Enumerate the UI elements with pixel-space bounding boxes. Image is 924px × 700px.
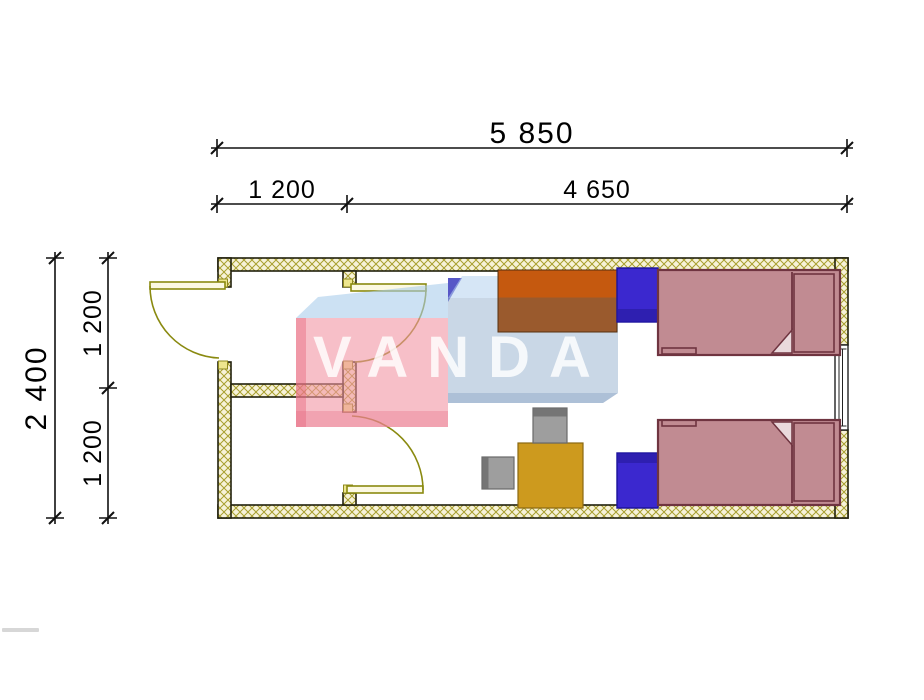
bed-bottom [658,420,840,505]
desk-top-surface [499,271,617,298]
bed-bottom-pillow [794,423,834,501]
desk [498,270,617,332]
furniture-svg [0,0,924,700]
nightstand-top [617,268,658,322]
nightstand-top-shade [618,309,657,321]
nightstand-bottom [617,453,658,508]
chair-top-backrest [534,409,567,417]
chair-left [482,457,514,489]
chair-top [533,408,567,443]
floorplan-image: 5 850 1 200 4 650 2 400 1 200 1 200 [0,0,924,700]
chair-left-backrest [483,458,489,489]
fine-print-smudge [2,628,39,632]
bed-top-pillow [794,274,834,352]
nightstand-bottom-shade [618,454,657,463]
bed-top [658,270,840,355]
dining-table [518,443,583,508]
